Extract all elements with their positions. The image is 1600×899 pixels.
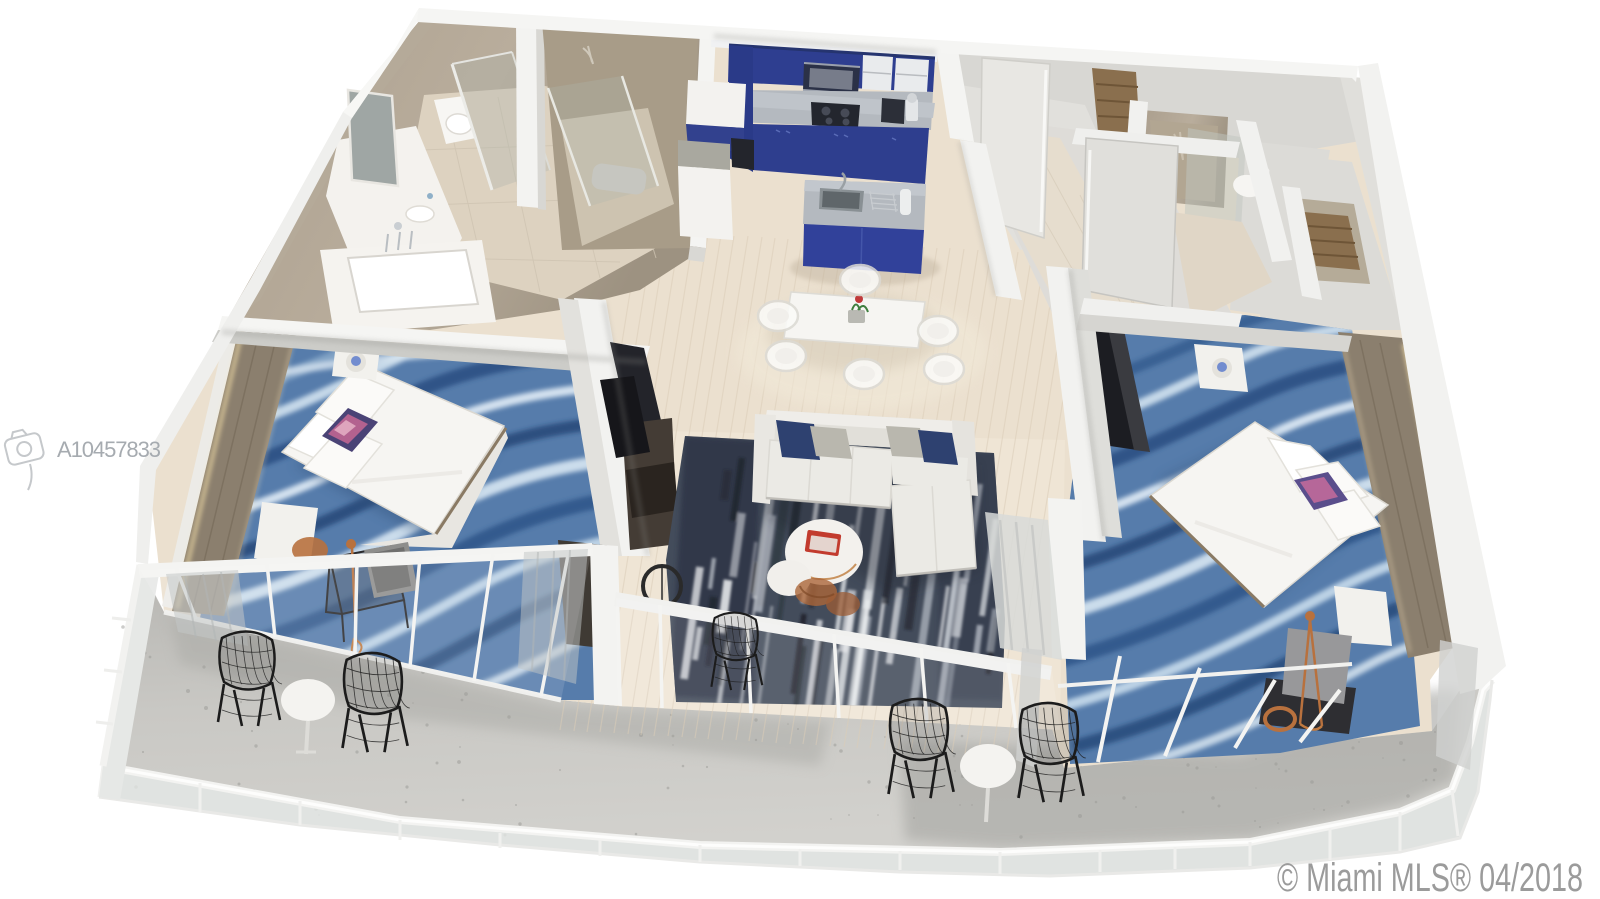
svg-text:A10457833: A10457833: [57, 437, 161, 462]
svg-text:© Miami MLS® 04/2018: © Miami MLS® 04/2018: [1277, 856, 1583, 899]
